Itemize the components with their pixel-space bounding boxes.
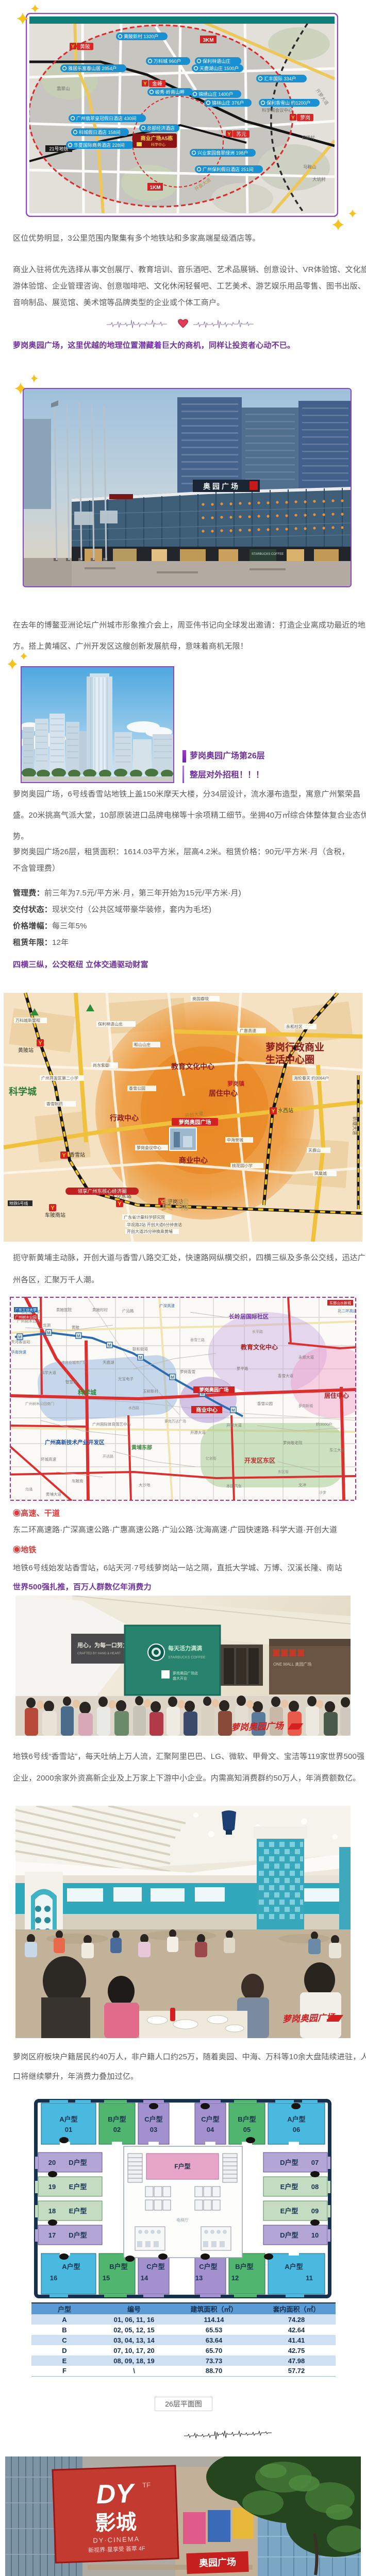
svg-text:广汕路: 广汕路 <box>122 1308 134 1313</box>
svg-text:天河客运站: 天河客运站 <box>11 1339 30 1344</box>
svg-text:E户型: E户型 <box>280 2207 298 2215</box>
svg-text:广州开发区第二小学: 广州开发区第二小学 <box>41 1076 78 1081</box>
svg-text:海伦春天 约3064户: 海伦春天 约3064户 <box>294 1076 329 1081</box>
svg-text:居住中心: 居住中心 <box>209 1089 238 1097</box>
svg-text:Y: Y <box>71 44 75 50</box>
svg-text:DY·CINEMA: DY·CINEMA <box>93 2535 140 2544</box>
svg-text:01: 01 <box>65 2126 72 2133</box>
svg-text:17: 17 <box>48 2231 56 2239</box>
svg-text:04: 04 <box>207 2126 214 2133</box>
svg-text:萝岗奥园广场: 萝岗奥园广场 <box>230 1721 285 1733</box>
svg-text:08: 08 <box>311 2183 319 2191</box>
svg-text:新塘大道: 新塘大道 <box>352 1116 358 1135</box>
svg-text:科学城会议中心: 科学城会议中心 <box>262 108 293 113</box>
svg-text:北二环高速: 北二环高速 <box>338 1308 356 1313</box>
svg-text:STARBUCKS COFFEE: STARBUCKS COFFEE <box>168 1656 206 1659</box>
svg-text:A户型: A户型 <box>287 2115 305 2123</box>
svg-text:东江大道: 东江大道 <box>329 1447 345 1452</box>
svg-text:萝岗新城: 萝岗新城 <box>298 1403 313 1408</box>
svg-text:黄埔东部: 黄埔东部 <box>131 1444 152 1451</box>
svg-text:电梯厅: 电梯厅 <box>176 2217 189 2223</box>
svg-text:Y: Y <box>227 132 231 138</box>
svg-text:萝岗敬老院: 萝岗敬老院 <box>283 1440 303 1445</box>
svg-text:M: M <box>171 1375 174 1380</box>
svg-text:领享广州东核心经济圈: 领享广州东核心经济圈 <box>77 1189 126 1195</box>
svg-text:尚东紫御: 尚东紫御 <box>93 1063 109 1068</box>
svg-text:黄 埔: 黄 埔 <box>161 1198 189 1212</box>
svg-text:M: M <box>77 1334 80 1338</box>
svg-text:科学城: 科学城 <box>78 1388 96 1396</box>
svg-text:03: 03 <box>150 2126 157 2133</box>
svg-text:凤凰城: 凤凰城 <box>314 1172 327 1176</box>
svg-text:约3000户: 约3000户 <box>316 1421 332 1427</box>
svg-text:广惠高速: 广惠高速 <box>240 1028 256 1033</box>
svg-text:10: 10 <box>311 2231 319 2239</box>
svg-text:C户型: C户型 <box>144 2115 162 2123</box>
svg-text:Y: Y <box>51 1205 55 1211</box>
svg-text:中海誉城: 中海誉城 <box>227 1138 243 1143</box>
svg-text:黄陂医院: 黄陂医院 <box>56 1307 72 1312</box>
svg-text:萝平路: 萝平路 <box>237 1366 248 1371</box>
svg-text:B户型: B户型 <box>109 2263 127 2270</box>
svg-text:M: M <box>139 1355 142 1360</box>
svg-text:马鞍山: 马鞍山 <box>303 164 317 170</box>
svg-text:水西路: 水西路 <box>128 1405 139 1410</box>
svg-text:水西站: 水西站 <box>278 1107 293 1114</box>
svg-text:15: 15 <box>103 2274 110 2282</box>
svg-text:萝岗: 萝岗 <box>300 115 310 121</box>
svg-text:M: M <box>18 1335 22 1340</box>
svg-text:奥园春晓: 奥园春晓 <box>192 996 209 1002</box>
svg-text:萝岗万达广场: 萝岗万达广场 <box>164 1419 186 1423</box>
svg-text:桃花园小学: 桃花园小学 <box>232 1163 253 1168</box>
svg-text:亿创街: 亿创街 <box>206 1456 217 1461</box>
svg-text:光宝电子: 光宝电子 <box>118 1376 134 1381</box>
svg-text:玉树新村: 玉树新村 <box>143 1388 158 1394</box>
svg-text:科城假日酒店 158间: 科城假日酒店 158间 <box>79 129 121 135</box>
svg-text:锦林山庄 376户: 锦林山庄 376户 <box>212 100 244 106</box>
svg-text:黄陂: 黄陂 <box>72 1325 79 1330</box>
svg-text:09: 09 <box>311 2207 319 2215</box>
svg-text:萝岗奥园广场: 萝岗奥园广场 <box>179 1119 211 1126</box>
svg-text:D户型: D户型 <box>69 2159 87 2166</box>
svg-text:文冲: 文冲 <box>298 1482 306 1487</box>
svg-text:E户型: E户型 <box>69 2183 87 2191</box>
svg-text:B户型: B户型 <box>238 2115 256 2123</box>
svg-text:Y: Y <box>62 1153 66 1159</box>
svg-text:联和街道: 联和街道 <box>132 1346 148 1351</box>
svg-text:苏元: 苏元 <box>236 131 246 138</box>
svg-text:教育文化中心: 教育文化中心 <box>171 1062 214 1071</box>
svg-text:天鹿湖: 天鹿湖 <box>103 1360 114 1365</box>
svg-text:DY: DY <box>96 2479 137 2510</box>
svg-text:黄埔大道: 黄埔大道 <box>46 1492 61 1497</box>
svg-text:萝岗奥园广场: 萝岗奥园广场 <box>199 1387 229 1393</box>
svg-text:Y: Y <box>118 1201 122 1207</box>
svg-text:开发区东区: 开发区东区 <box>244 1456 275 1464</box>
svg-text:龙洞: 龙洞 <box>43 1323 51 1328</box>
svg-text:每天活力满满: 每天活力满满 <box>168 1645 202 1652</box>
svg-text:东部山水新城: 东部山水新城 <box>329 1301 351 1306</box>
svg-text:香雪大道: 香雪大道 <box>278 1373 293 1378</box>
svg-text:香雪公园: 香雪公园 <box>257 1401 273 1406</box>
svg-text:萝岗会议中心: 萝岗会议中心 <box>137 1145 161 1150</box>
svg-text:行政中心: 行政中心 <box>109 1114 139 1122</box>
svg-text:石桥村: 石桥村 <box>302 135 315 140</box>
svg-text:商业广场A5栋: 商业广场A5栋 <box>141 135 173 142</box>
svg-text:乌涌: 乌涌 <box>25 1487 32 1492</box>
svg-text:影城: 影城 <box>95 2511 137 2535</box>
svg-text:汇丰国际 334户: 汇丰国际 334户 <box>264 76 296 81</box>
svg-text:翡翠山: 翡翠山 <box>57 86 70 91</box>
svg-text:雅居乐富春山居 2854户: 雅居乐富春山居 2854户 <box>68 65 117 71</box>
svg-text:智慧城: 智慧城 <box>65 1379 77 1384</box>
svg-text:开创大道25分钟换乘黄埔: 开创大道25分钟换乘黄埔 <box>127 1229 173 1234</box>
svg-text:佳兆业城市广场: 佳兆业城市广场 <box>61 1360 87 1365</box>
svg-text:开源大道: 开源大道 <box>190 1430 206 1435</box>
svg-text:16: 16 <box>50 2274 57 2282</box>
svg-text:沙步: 沙步 <box>319 1490 326 1495</box>
svg-text:锦绣山庄 1400户: 锦绣山庄 1400户 <box>198 91 234 97</box>
svg-text:黄陂: 黄陂 <box>80 43 90 50</box>
svg-text:地铁5号线: 地铁5号线 <box>9 1201 28 1206</box>
svg-text:萝岗香雪: 萝岗香雪 <box>180 1369 195 1374</box>
svg-text:保利林语山庄: 保利林语山庄 <box>98 1022 123 1027</box>
svg-text:黄陂新村 1320户: 黄陂新村 1320户 <box>124 33 159 39</box>
svg-text:黄陂时村: 黄陂时村 <box>92 1307 108 1312</box>
svg-text:A户型: A户型 <box>62 2263 80 2270</box>
svg-text:大坑村: 大坑村 <box>312 177 326 182</box>
svg-text:车陂南站: 车陂南站 <box>45 1212 65 1218</box>
svg-text:06: 06 <box>293 2126 300 2133</box>
svg-text:广州高新技术产业开发区: 广州高新技术产业开发区 <box>45 1439 105 1446</box>
svg-text:永和社区: 永和社区 <box>286 1024 303 1029</box>
svg-text:02: 02 <box>113 2126 121 2133</box>
svg-text:E户型: E户型 <box>280 2183 298 2191</box>
svg-text:广州国际体育演艺中心: 广州国际体育演艺中心 <box>92 1421 131 1427</box>
svg-text:黄陂站: 黄陂站 <box>18 1047 34 1054</box>
svg-text:保利林语山庄: 保利林语山庄 <box>203 58 230 64</box>
svg-text:萝岗行政商业: 萝岗行政商业 <box>265 1041 324 1053</box>
svg-text:车陂南: 车陂南 <box>72 1478 84 1483</box>
svg-text:D户型: D户型 <box>280 2231 298 2239</box>
svg-text:和山山庄: 和山山庄 <box>134 1042 151 1047</box>
svg-text:M: M <box>47 1331 51 1335</box>
svg-text:居住中心: 居住中心 <box>324 1392 349 1399</box>
svg-text:天鹿湖山庄 1500户: 天鹿湖山庄 1500户 <box>199 65 239 71</box>
svg-text:C户型: C户型 <box>199 2263 217 2270</box>
svg-text:大沙地: 大沙地 <box>139 1482 151 1487</box>
svg-text:Y: Y <box>38 1040 42 1046</box>
svg-text:A户型: A户型 <box>285 2263 303 2270</box>
svg-text:E户型: E户型 <box>69 2207 87 2215</box>
svg-text:东区街: 东区街 <box>278 1469 289 1474</box>
svg-text:天鹿山: 天鹿山 <box>308 1148 321 1153</box>
svg-text:TF: TF <box>142 2481 151 2489</box>
svg-text:C户型: C户型 <box>146 2263 164 2270</box>
svg-text:兴业家园翡翠绿洲 198户: 兴业家园翡翠绿洲 198户 <box>197 150 248 156</box>
svg-text:广州保利假日酒店 251间: 广州保利假日酒店 251间 <box>203 166 254 172</box>
svg-text:香雪站: 香雪站 <box>70 1151 85 1158</box>
svg-text:CRAFTED BY HAND & HEART: CRAFTED BY HAND & HEART <box>77 1652 121 1655</box>
svg-text:B户型: B户型 <box>108 2115 126 2123</box>
svg-text:环城高速: 环城高速 <box>41 1456 56 1462</box>
svg-text:M: M <box>231 1408 235 1413</box>
svg-text:M: M <box>108 1343 111 1348</box>
svg-text:香雪公园: 香雪公园 <box>129 1086 145 1091</box>
svg-text:广东省计量科学研究院: 广东省计量科学研究院 <box>124 1215 165 1220</box>
svg-text:开达路: 开达路 <box>103 1454 113 1459</box>
svg-text:Y: Y <box>291 115 295 121</box>
svg-text:Y: Y <box>143 81 147 87</box>
svg-text:科学中心: 科学中心 <box>151 142 165 147</box>
svg-text:19: 19 <box>48 2183 56 2191</box>
svg-text:12: 12 <box>231 2274 239 2282</box>
svg-text:盛大开业: 盛大开业 <box>173 1676 187 1681</box>
svg-text:金峰: 金峰 <box>152 80 162 87</box>
svg-text:07: 07 <box>311 2159 319 2166</box>
svg-text:D户型: D户型 <box>69 2231 87 2239</box>
svg-text:广深高速: 广深高速 <box>159 1303 175 1308</box>
svg-text:香雪三路: 香雪三路 <box>190 1337 205 1342</box>
svg-text:香雪制药: 香雪制药 <box>46 1101 63 1107</box>
svg-text:华夏国际商务酒店 228间: 华夏国际商务酒店 228间 <box>74 142 125 148</box>
svg-text:Y: Y <box>271 1108 275 1114</box>
svg-text:广州树木公园: 广州树木公园 <box>15 1315 37 1319</box>
svg-text:永顺大道: 永顺大道 <box>298 1354 314 1360</box>
svg-text:教育文化中心: 教育文化中心 <box>240 1343 278 1351</box>
svg-text:开泰大道: 开泰大道 <box>226 1422 242 1428</box>
svg-text:广东工业大学: 广东工业大学 <box>15 1308 37 1312</box>
svg-text:保利香雪山 约1200户: 保利香雪山 约1200户 <box>267 100 311 106</box>
svg-text:科学大道: 科学大道 <box>41 1370 56 1375</box>
svg-text:峻秀·岭南山畔: 峻秀·岭南山畔 <box>155 89 185 95</box>
svg-text:萝岗镇: 萝岗镇 <box>227 1080 244 1087</box>
svg-text:13: 13 <box>195 2274 203 2282</box>
svg-text:长平路: 长平路 <box>252 1329 263 1334</box>
svg-text:用心，为每一口努力: 用心，为每一口努力 <box>77 1641 128 1649</box>
svg-text:广州翡翠皇冠假日酒店 430间: 广州翡翠皇冠假日酒店 430间 <box>76 115 137 121</box>
svg-text:11: 11 <box>306 2274 313 2282</box>
svg-text:ONE MALL 奥园广场: ONE MALL 奥园广场 <box>273 1662 311 1667</box>
svg-text:A户型: A户型 <box>59 2115 77 2123</box>
svg-text:D户型: D户型 <box>280 2159 298 2166</box>
svg-text:开泰大道: 开泰大道 <box>193 177 212 192</box>
svg-text:华南快速: 华南快速 <box>11 1349 26 1354</box>
svg-text:总部经济酒店: 总部经济酒店 <box>147 125 175 131</box>
svg-text:奥园广场: 奥园广场 <box>199 2556 237 2569</box>
svg-text:奥园广场: 奥园广场 <box>203 482 240 490</box>
svg-text:科学城: 科学城 <box>9 1086 37 1097</box>
svg-text:20: 20 <box>48 2159 56 2166</box>
svg-text:本田汽车: 本田汽车 <box>226 1483 242 1488</box>
svg-text:STARBUCKS COFFEE: STARBUCKS COFFEE <box>252 553 284 556</box>
svg-text:生活中心圈: 生活中心圈 <box>265 1054 314 1065</box>
svg-text:华观路2站 开创大道6分钟直达: 华观路2站 开创大道6分钟直达 <box>127 1222 182 1227</box>
svg-text:05: 05 <box>243 2126 251 2133</box>
svg-text:14: 14 <box>141 2274 148 2282</box>
svg-text:商业中心: 商业中心 <box>179 1156 208 1164</box>
svg-text:萝岗奥园广场店: 萝岗奥园广场店 <box>173 1671 198 1675</box>
svg-text:F户型: F户型 <box>174 2162 190 2170</box>
svg-text:万科城 960户: 万科城 960户 <box>154 58 181 64</box>
svg-text:18: 18 <box>48 2207 56 2215</box>
svg-text:B户型: B户型 <box>235 2263 253 2270</box>
svg-text:萝岗奥园广场: 萝岗奥园广场 <box>282 2012 336 2024</box>
svg-text:商业中心: 商业中心 <box>196 1406 218 1413</box>
svg-text:广州树木公园南门: 广州树木公园南门 <box>25 1401 54 1406</box>
svg-text:万科城新里程: 万科城新里程 <box>15 1018 40 1023</box>
svg-text:C户型: C户型 <box>201 2115 219 2123</box>
